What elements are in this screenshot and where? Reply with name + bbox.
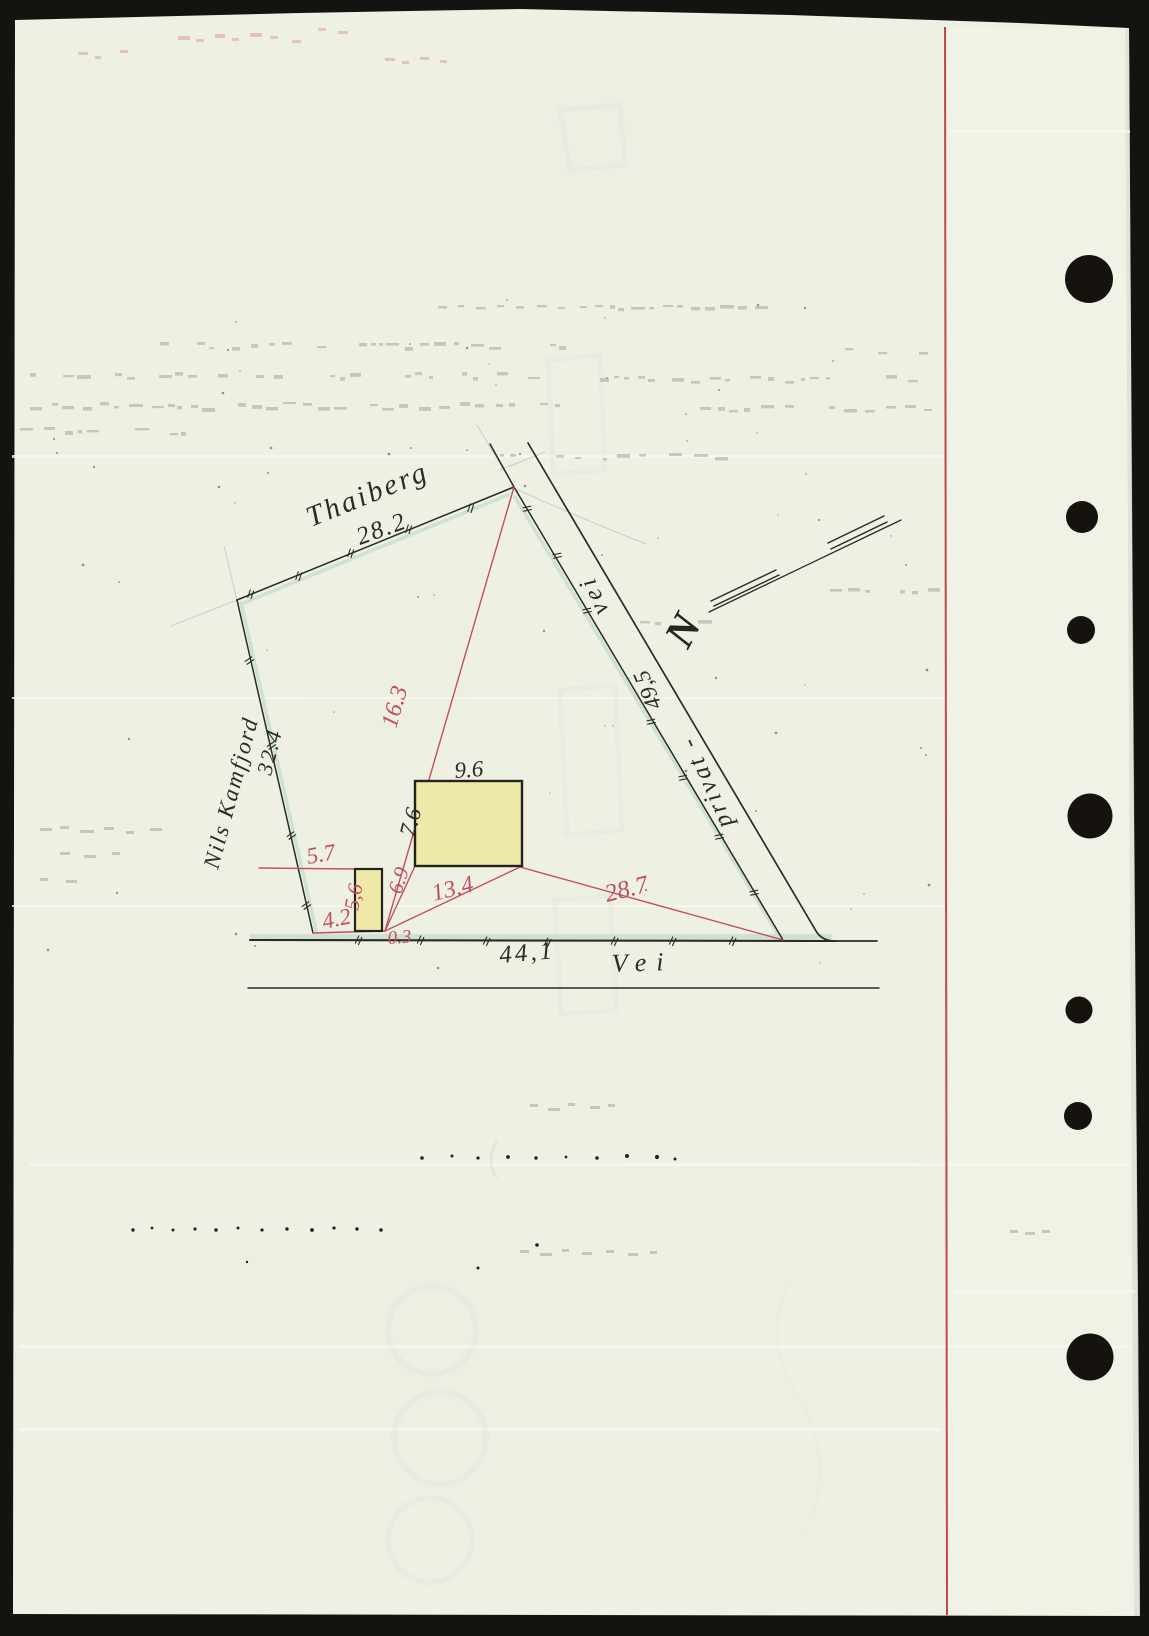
svg-text:5,6: 5,6 (339, 881, 367, 912)
svg-text:5.7: 5.7 (305, 839, 339, 869)
svg-text:0.3: 0.3 (387, 926, 412, 949)
svg-text:9.6: 9.6 (454, 756, 485, 783)
svg-text:44,1: 44,1 (498, 937, 556, 969)
svg-text:Vei: Vei (611, 947, 674, 978)
